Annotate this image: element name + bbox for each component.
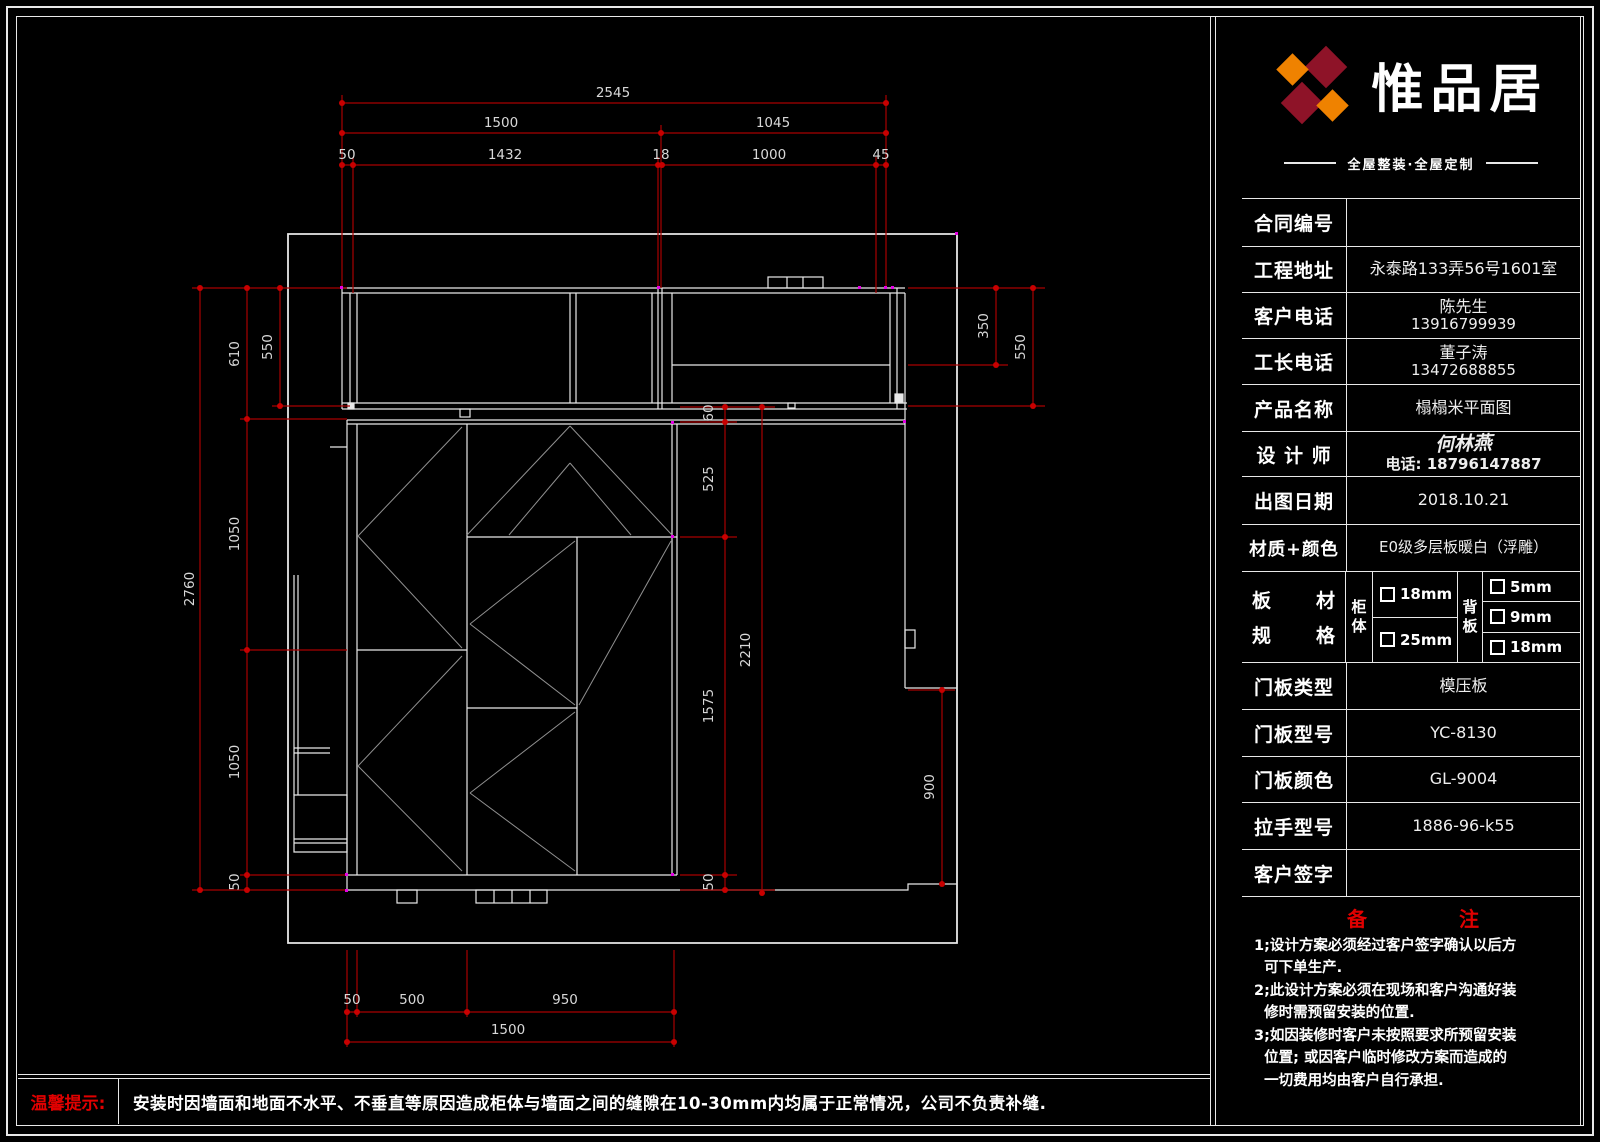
titleblock-separator-inner [1215, 16, 1216, 1126]
label-designer: 设 计 师 [1242, 432, 1347, 476]
room-walls [288, 234, 957, 943]
option-18mm-back: 18mm [1483, 633, 1580, 662]
designer-signature: 何林燕 [1435, 433, 1493, 457]
spec-char-ge: 格 [1316, 621, 1335, 648]
value-contract-no [1347, 199, 1580, 246]
label-handle-model: 拉手型号 [1242, 803, 1347, 849]
label-contract-no: 合同编号 [1242, 199, 1347, 246]
brand-tagline: 全屋整装·全屋定制 [1348, 154, 1475, 173]
dim-in-900: 900 [922, 774, 938, 800]
back-panel-label: 背板 [1458, 572, 1483, 662]
dim-top-total: 2545 [596, 85, 630, 101]
label-material-color: 材质+颜色 [1242, 525, 1347, 571]
brand-logo-icon [1273, 48, 1357, 132]
dim-in-50: 50 [701, 873, 717, 890]
dim-right-350: 350 [976, 313, 992, 339]
notes-title: 备注 [1254, 903, 1572, 932]
cabinet-body-label: 柜体 [1346, 572, 1373, 662]
row-handle-model: 拉手型号 1886-96-k55 [1242, 803, 1580, 850]
value-customer-signature[interactable] [1347, 850, 1580, 896]
value-door-type: 模压板 [1347, 663, 1580, 709]
dim-top-50: 50 [338, 147, 355, 163]
dim-left-1050b: 1050 [227, 745, 243, 779]
dim-left-610: 610 [227, 341, 243, 367]
value-handle-model: 1886-96-k55 [1347, 803, 1580, 849]
dim-in-60: 60 [701, 404, 717, 421]
note-item-3: 3;如因装修时客户未按照要求所预留安装 位置; 或因客户临时修改方案而造成的 一… [1254, 1025, 1572, 1092]
row-material-color: 材质+颜色 E0级多层板暖白（浮雕） [1242, 525, 1580, 572]
dim-bot-1500: 1500 [491, 1022, 525, 1038]
row-customer-phone: 客户电话 陈先生 13916799939 [1242, 293, 1580, 339]
dim-bot-950: 950 [552, 992, 578, 1008]
tatami-lid-marks [358, 426, 672, 871]
row-customer-signature: 客户签字 [1242, 850, 1580, 897]
row-contract-no: 合同编号 [1242, 199, 1580, 247]
dim-left-50: 50 [227, 873, 243, 890]
dimension-labels: 2545 1500 1045 50 1432 18 1000 45 2760 6… [182, 85, 1029, 1038]
checkbox-18mm-back[interactable] [1490, 640, 1505, 655]
designer-phone: 电话: 18796147887 [1385, 456, 1541, 473]
snap-markers [340, 232, 958, 892]
dim-bot-500: 500 [399, 992, 425, 1008]
foreman-name: 董子涛 [1439, 344, 1487, 362]
foreman-phone-number: 13472688855 [1411, 362, 1516, 379]
dim-left-1050a: 1050 [227, 517, 243, 551]
dim-in-525: 525 [701, 466, 717, 492]
row-designer: 设 计 师 何林燕 电话: 18796147887 [1242, 432, 1580, 477]
floorplan-drawing: 2545 1500 1045 50 1432 18 1000 45 2760 6… [0, 0, 1212, 1142]
note-item-2: 2;此设计方案必须在现场和客户沟通好装 修时需预留安装的位置. [1254, 980, 1572, 1025]
cad-sheet: 2545 1500 1045 50 1432 18 1000 45 2760 6… [0, 0, 1600, 1142]
value-project-address: 永泰路133弄56号1601室 [1347, 247, 1580, 292]
dim-top-45: 45 [872, 147, 889, 163]
checkbox-25mm-cabinet[interactable] [1380, 632, 1395, 647]
title-block: 惟品居 全屋整装·全屋定制 合同编号 工程地址 永泰路133弄56号1601室 … [1242, 16, 1581, 1126]
board-spec-row: 板材 规格 柜体 18mm 25mm 背板 [1242, 572, 1580, 663]
value-customer-phone: 陈先生 13916799939 [1347, 293, 1580, 338]
dim-in-2210: 2210 [738, 633, 754, 667]
checkbox-9mm-back[interactable] [1490, 609, 1505, 624]
row-project-address: 工程地址 永泰路133弄56号1601室 [1242, 247, 1580, 293]
value-door-model: YC-8130 [1347, 710, 1580, 756]
brand-name: 惟品居 [1371, 64, 1548, 116]
option-9mm-back: 9mm [1483, 602, 1580, 632]
dimension-lines [192, 95, 1045, 1047]
spec-char-cai: 材 [1316, 586, 1335, 613]
checkbox-5mm-back[interactable] [1490, 579, 1505, 594]
footer-warning-label: 温馨提示: [18, 1079, 119, 1124]
option-18mm-cabinet: 18mm [1373, 572, 1457, 618]
label-foreman-phone: 工长电话 [1242, 339, 1347, 384]
row-door-model: 门板型号 YC-8130 [1242, 710, 1580, 757]
row-foreman-phone: 工长电话 董子涛 13472688855 [1242, 339, 1580, 385]
row-door-type: 门板类型 模压板 [1242, 663, 1580, 710]
dim-left-2760: 2760 [182, 572, 198, 606]
footer-warning-message: 安装时因墙面和地面不水平、不垂直等原因造成柜体与墙面之间的缝隙在10-30mm内… [119, 1079, 1210, 1124]
board-spec-label: 板材 规格 [1242, 572, 1346, 662]
value-designer: 何林燕 电话: 18796147887 [1347, 432, 1580, 476]
logo-area: 惟品居 全屋整装·全屋定制 [1242, 16, 1580, 199]
label-plot-date: 出图日期 [1242, 477, 1347, 524]
checkbox-18mm-cabinet[interactable] [1380, 587, 1395, 602]
label-project-address: 工程地址 [1242, 247, 1347, 292]
footer-top-rule [18, 1074, 1210, 1075]
label-door-type: 门板类型 [1242, 663, 1347, 709]
dim-top-1500: 1500 [484, 115, 518, 131]
label-product-name: 产品名称 [1242, 385, 1347, 431]
dim-top-18: 18 [652, 147, 669, 163]
row-plot-date: 出图日期 2018.10.21 [1242, 477, 1580, 525]
value-door-color: GL-9004 [1347, 757, 1580, 802]
dim-right-550: 550 [1013, 334, 1029, 360]
notes-section: 备注 1;设计方案必须经过客户签字确认以后方 可下单生产. 2;此设计方案必须在… [1242, 897, 1580, 1125]
row-product-name: 产品名称 榻榻米平面图 [1242, 385, 1580, 432]
row-door-color: 门板颜色 GL-9004 [1242, 757, 1580, 803]
option-25mm-cabinet: 25mm [1373, 618, 1457, 663]
wall-details [294, 293, 957, 890]
tagline-rule-left [1284, 162, 1336, 164]
label-door-model: 门板型号 [1242, 710, 1347, 756]
dimension-dots [197, 100, 1036, 1045]
customer-phone-number: 13916799939 [1411, 316, 1516, 333]
value-product-name: 榻榻米平面图 [1347, 385, 1580, 431]
value-foreman-phone: 董子涛 13472688855 [1347, 339, 1580, 384]
value-material-color: E0级多层板暖白（浮雕） [1347, 525, 1580, 571]
note-item-1: 1;设计方案必须经过客户签字确认以后方 可下单生产. [1254, 935, 1572, 980]
dim-left-550: 550 [260, 334, 276, 360]
dim-top-1045: 1045 [756, 115, 790, 131]
value-plot-date: 2018.10.21 [1347, 477, 1580, 524]
dim-bot-50: 50 [343, 992, 360, 1008]
customer-name: 陈先生 [1439, 298, 1487, 316]
option-5mm-back: 5mm [1483, 572, 1580, 602]
tatami-platform [347, 420, 905, 903]
footer-warning-bar: 温馨提示: 安装时因墙面和地面不水平、不垂直等原因造成柜体与墙面之间的缝隙在10… [18, 1078, 1210, 1124]
dim-in-1575: 1575 [701, 689, 717, 723]
label-customer-phone: 客户电话 [1242, 293, 1347, 338]
tagline-rule-right [1486, 162, 1538, 164]
top-cabinet [342, 277, 907, 417]
dim-top-1432: 1432 [488, 147, 522, 163]
label-customer-signature: 客户签字 [1242, 850, 1347, 896]
label-door-color: 门板颜色 [1242, 757, 1347, 802]
cabinet-thickness-options: 18mm 25mm [1373, 572, 1458, 662]
back-thickness-options: 5mm 9mm 18mm [1483, 572, 1580, 662]
spec-char-gui: 规 [1252, 621, 1271, 648]
spec-char-ban: 板 [1252, 586, 1271, 613]
dim-top-1000: 1000 [752, 147, 786, 163]
